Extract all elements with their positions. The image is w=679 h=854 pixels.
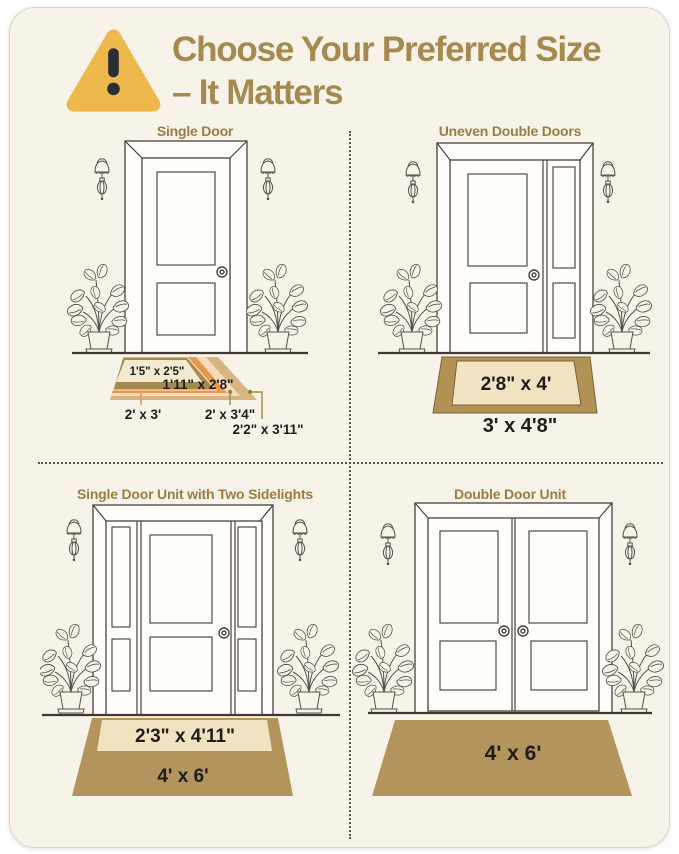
door-panel xyxy=(157,283,215,335)
door-panel xyxy=(531,641,587,690)
door-panel xyxy=(150,535,212,623)
plant-icon xyxy=(246,263,308,353)
sconce-icon xyxy=(95,159,109,200)
sidelight-panel xyxy=(112,527,130,627)
quadrant-double-door-unit: Double Door Unit xyxy=(350,463,670,838)
poster-card: Choose Your Preferred Size – It Matters … xyxy=(9,7,670,848)
plant-icon xyxy=(380,263,442,353)
single-door-illustration: 1'5" x 2'5" 1'11" x 2'8" 2' x 3' 2' x 3'… xyxy=(40,120,350,463)
uneven-double-doors-illustration: 2'8" x 4' 3' x 4'8" xyxy=(350,120,670,463)
sidelight-panel xyxy=(238,639,256,691)
page-title: Choose Your Preferred Size – It Matters xyxy=(172,28,600,114)
sconce-icon xyxy=(601,162,615,203)
plant-icon xyxy=(590,263,652,353)
door-panel xyxy=(470,283,527,333)
sidelight-panel xyxy=(112,639,130,691)
warning-icon xyxy=(65,26,162,115)
sconce-icon xyxy=(623,524,637,565)
page-title-line2: – It Matters xyxy=(172,71,600,114)
mat-size-label: 4' x 6' xyxy=(485,742,542,765)
mat-size-label: 2' x 3' xyxy=(125,407,161,422)
door-panel xyxy=(157,172,215,265)
poster-canvas: Choose Your Preferred Size – It Matters … xyxy=(0,0,679,854)
door-panel xyxy=(440,531,498,623)
quadrant-single-door: Single Door 1'5" x 2'5" xyxy=(40,120,350,463)
mat-size-label: 2' x 3'4" xyxy=(205,407,255,422)
sconce-icon xyxy=(381,524,395,565)
quadrant-single-door-two-sidelights: Single Door Unit with Two Sidelights xyxy=(40,463,350,838)
mat-size-label: 2'8" x 4' xyxy=(481,374,552,395)
mat-size-label: 4' x 6' xyxy=(157,766,208,787)
door-panel xyxy=(440,641,496,690)
sidelight-panel xyxy=(553,167,575,268)
mat-size-label: 1'11" x 2'8" xyxy=(162,377,233,392)
sconce-icon xyxy=(293,520,307,561)
page-title-line1: Choose Your Preferred Size xyxy=(172,28,600,71)
plant-icon xyxy=(67,263,129,353)
plant-icon xyxy=(352,623,414,713)
door-panel xyxy=(150,637,212,691)
sidelight-panel xyxy=(238,527,256,627)
sidelight-panel xyxy=(553,283,575,338)
door-panel xyxy=(468,174,527,266)
sconce-icon xyxy=(67,520,81,561)
sconce-icon xyxy=(406,162,420,203)
sconce-icon xyxy=(261,159,275,200)
door-panel xyxy=(529,531,587,623)
plant-icon xyxy=(40,623,101,713)
plant-icon xyxy=(277,623,339,713)
mat-size-label: 2'2" x 3'11" xyxy=(232,422,303,437)
quadrant-uneven-double-doors: Uneven Double Doors xyxy=(350,120,670,463)
mat-size-label: 2'3" x 4'11" xyxy=(135,726,235,747)
double-door-unit-illustration: 4' x 6' xyxy=(350,463,670,838)
mat-size-label: 3' x 4'8" xyxy=(483,415,558,437)
single-door-two-sidelights-illustration: 2'3" x 4'11" 4' x 6' xyxy=(40,463,350,838)
